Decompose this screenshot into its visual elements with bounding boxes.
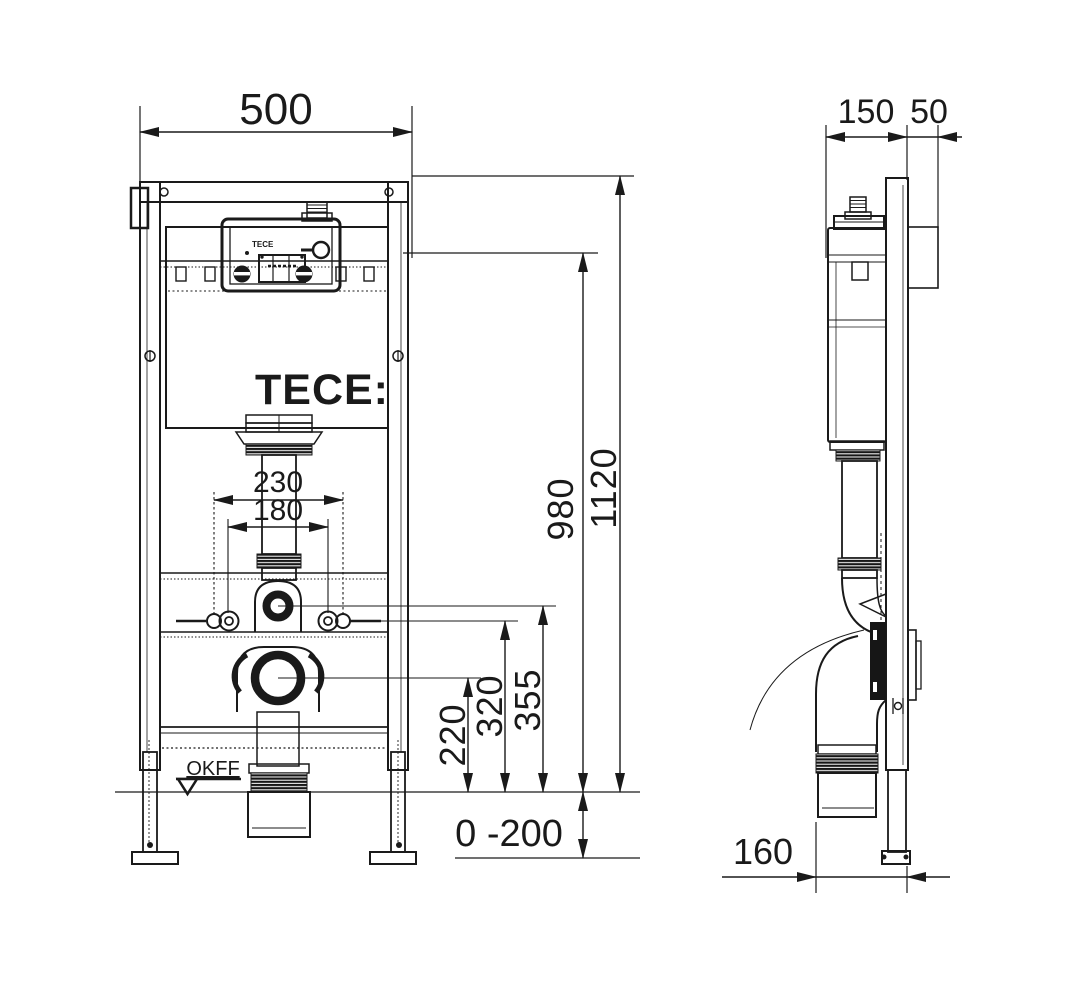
side-drain-bend-left (816, 636, 858, 752)
dim-upper-ref-label: 980 (540, 477, 581, 540)
flush-pipe-stub (262, 568, 296, 580)
box-dot (245, 251, 249, 255)
dim-total-height-label: 1120 (583, 447, 624, 528)
flush-pipe-band (257, 554, 301, 568)
wc-fixing-strip (870, 622, 886, 700)
box-module-label: TECE (252, 240, 274, 249)
dim-elbow-height-label: 355 (507, 668, 548, 731)
protection-box (908, 227, 938, 288)
dim-front-offset-label: 50 (910, 93, 948, 131)
dim-foot-range-label: 0 -200 (455, 813, 563, 855)
side-socket-hatch (816, 754, 878, 773)
fixing-bolt-washer (220, 612, 239, 631)
dim-bolt-height-label: 320 (469, 674, 510, 737)
okff-label: OKFF (186, 758, 239, 780)
side-pipe-band (838, 558, 881, 570)
fixing-bolt-washer (319, 612, 338, 631)
wc-fixing-slot (873, 630, 877, 640)
side-tank-latch (852, 262, 868, 280)
side-foot-bolt (904, 855, 909, 860)
side-view (750, 178, 938, 864)
rail-tab (205, 267, 215, 281)
frame-rail-left (140, 182, 160, 770)
side-socket-cap (818, 745, 876, 754)
dim-outlet-offset-label: 160 (733, 831, 793, 872)
side-drain-socket (818, 773, 876, 817)
flush-flange-band (246, 444, 312, 455)
rail-tab (364, 267, 374, 281)
side-rail (886, 178, 908, 770)
foot-plate-right (370, 852, 416, 864)
drain-socket-hatch (251, 773, 307, 792)
box-clamp-slit (296, 272, 312, 275)
side-pipe-stub (842, 570, 877, 578)
side-foot-leg (888, 770, 906, 852)
pan-outline-arc (750, 630, 864, 730)
frame-rail-right (388, 182, 408, 770)
side-foot-bolt (882, 855, 887, 860)
dim-bolt-inner-label: 180 (253, 494, 303, 527)
flush-access-box: TECE (222, 202, 340, 291)
foot-bolt-left (147, 842, 153, 848)
foot-leg-left (143, 752, 157, 852)
installation-frame-drawing: TECE TECE: (0, 0, 1077, 992)
top-bar-hole-left (160, 188, 168, 196)
side-elbow-seam (860, 594, 886, 617)
side-flange-band (836, 450, 880, 461)
flush-flange (236, 432, 322, 444)
rail-hole-side (895, 703, 902, 710)
foot-plate-left (132, 852, 178, 864)
flush-rod-knob (313, 242, 329, 258)
drain-socket (248, 792, 310, 837)
dim-outlet-height-label: 220 (432, 703, 473, 766)
box-clamp-slit (234, 272, 250, 275)
fixing-bolt-core (225, 617, 233, 625)
wc-fixing-slot (873, 682, 877, 692)
dim-front-width-label: 500 (239, 85, 312, 134)
rail-tab (176, 267, 186, 281)
foot-bolt-right (396, 842, 402, 848)
technical-drawing-canvas: TECE TECE: (0, 0, 1077, 992)
side-tank (828, 228, 886, 442)
side-flush-pipe (842, 461, 877, 558)
frame-top-bar (140, 182, 408, 202)
side-bracket (908, 630, 916, 700)
dim-depth-label: 150 (838, 93, 895, 131)
fixing-bolt-core (324, 617, 332, 625)
drain-pipe-lower (257, 712, 299, 766)
side-drain-bend-right (877, 700, 886, 752)
brand-logo: TECE: (255, 366, 389, 414)
inlet-pipe (307, 202, 327, 218)
